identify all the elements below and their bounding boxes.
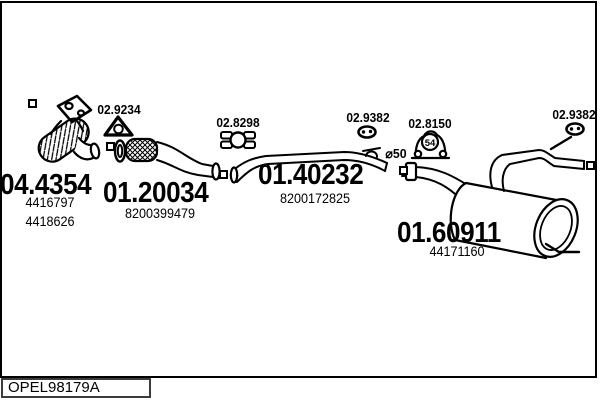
drawing-code-box: OPEL98179A <box>1 378 151 398</box>
exhaust-parts-diagram-page: 54 <box>0 0 600 400</box>
catalytic-oe-number-2: 4418626 <box>1 214 100 229</box>
rubber-hanger-icon <box>567 124 584 135</box>
pipe-clamp-icon <box>221 132 255 148</box>
flange-gasket-icon <box>105 117 132 135</box>
rubber-hanger-icon <box>359 127 376 138</box>
tailpipe-drawing <box>490 150 584 191</box>
marker-square-icon <box>107 143 114 150</box>
front-pipe-code[interactable]: 01.20034 <box>103 179 208 208</box>
front-pipe-oe-number: 8200399479 <box>111 206 210 221</box>
centre-pipe-oe-number: 8200172825 <box>266 191 365 206</box>
drawing-code: OPEL98179A <box>8 379 100 396</box>
hanger-tail-code-label[interactable]: 02.9382 <box>545 108 600 121</box>
marker-square-icon <box>587 162 594 169</box>
gasket-code-label[interactable]: 02.9234 <box>90 103 149 116</box>
catalytic-oe-number-1: 4416797 <box>1 195 100 210</box>
marker-square-icon <box>400 167 407 174</box>
rear-silencer-oe-number: 44171160 <box>408 244 507 259</box>
clamp-rear-code-label[interactable]: 02.8150 <box>401 117 460 130</box>
pipe-diameter-label: ⌀50 <box>375 147 417 160</box>
marker-square-icon <box>29 100 36 107</box>
centre-pipe-code[interactable]: 01.40232 <box>258 161 363 190</box>
marker-square-icon <box>220 171 227 178</box>
hanger-mid-code-label[interactable]: 02.9382 <box>339 111 398 124</box>
flex-pipe-drawing <box>115 139 220 180</box>
clamp-size-label: 54 <box>425 138 436 149</box>
u-bolt-clamp-icon: 54 <box>412 131 449 158</box>
hanger-rod-icon <box>551 137 571 149</box>
clamp-front-code-label[interactable]: 02.8298 <box>209 116 268 129</box>
